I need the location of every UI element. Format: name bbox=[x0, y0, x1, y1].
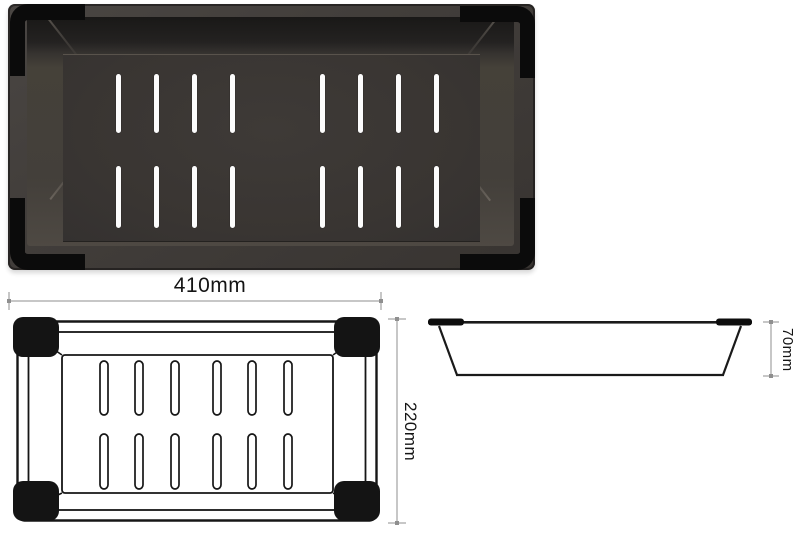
drain-slot bbox=[320, 74, 325, 133]
colander-floor bbox=[63, 54, 480, 242]
product-sheet: 410mm 220mm 70mm bbox=[0, 0, 800, 533]
drain-slot bbox=[135, 361, 143, 415]
height-dimension-label: 220mm bbox=[400, 402, 420, 461]
drain-slot bbox=[434, 74, 439, 133]
top-view-drawing bbox=[0, 274, 430, 533]
drain-slot bbox=[100, 361, 108, 415]
drain-slot bbox=[154, 166, 159, 228]
drain-slot bbox=[213, 361, 221, 415]
drain-slot bbox=[116, 74, 121, 133]
side-view-drawing bbox=[420, 298, 800, 388]
drain-slot bbox=[284, 434, 292, 489]
depth-dimension-line bbox=[763, 320, 779, 378]
drain-slot bbox=[358, 166, 363, 228]
rubber-corner-bumper bbox=[460, 198, 535, 270]
drain-slot bbox=[192, 166, 197, 228]
drain-slot bbox=[213, 434, 221, 489]
rubber-corner-bumper bbox=[10, 4, 85, 76]
drain-slot bbox=[248, 361, 256, 415]
product-photo bbox=[8, 4, 535, 270]
drain-slot bbox=[434, 166, 439, 228]
drain-slot bbox=[248, 434, 256, 489]
rubber-corner-bumper bbox=[10, 198, 85, 270]
drain-slot bbox=[320, 166, 325, 228]
drain-slot bbox=[192, 74, 197, 133]
drain-slot bbox=[230, 166, 235, 228]
drain-slot bbox=[396, 74, 401, 133]
width-dimension-label: 410mm bbox=[130, 274, 290, 298]
corner-bumper-profile bbox=[428, 319, 464, 326]
drain-slot bbox=[154, 74, 159, 133]
rim-profile-line bbox=[428, 321, 752, 324]
drain-slot bbox=[135, 434, 143, 489]
drain-slot bbox=[100, 434, 108, 489]
drain-slot bbox=[358, 74, 363, 133]
drain-slot bbox=[396, 166, 401, 228]
drain-slot bbox=[230, 74, 235, 133]
corner-bumper-profile bbox=[716, 319, 752, 326]
drain-slot bbox=[171, 434, 179, 489]
drain-slot bbox=[284, 361, 292, 415]
drain-slot bbox=[171, 361, 179, 415]
depth-dimension-label: 70mm bbox=[779, 328, 796, 372]
basket-profile bbox=[439, 326, 741, 375]
drain-slot bbox=[116, 166, 121, 228]
rubber-corner-bumper bbox=[460, 6, 535, 78]
